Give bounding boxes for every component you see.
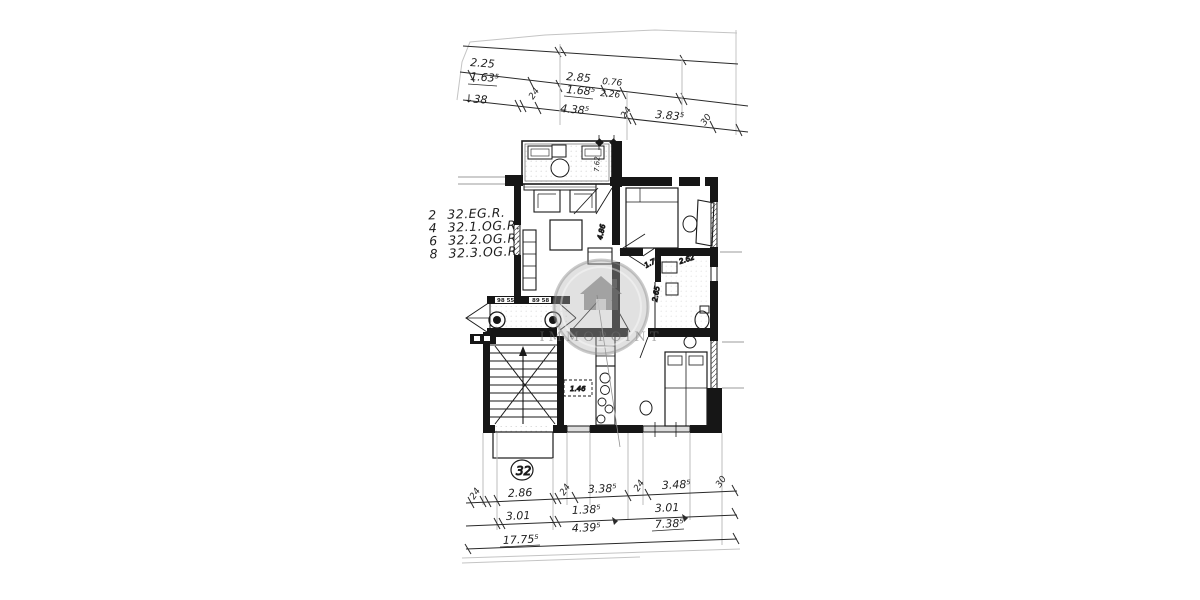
kitchen-sink bbox=[600, 373, 610, 383]
dim-24-b: 24 bbox=[619, 105, 634, 120]
dim-1-63: 1.63⁵ bbox=[470, 70, 500, 85]
bed-top bbox=[626, 188, 678, 248]
balcony: 7.62 bbox=[522, 135, 617, 184]
bdim-3-38: 3.38⁵ bbox=[588, 482, 617, 496]
watermark: IMMOPOINT bbox=[539, 260, 662, 354]
pillow-right bbox=[689, 356, 703, 365]
window-bedroom-bottom bbox=[643, 422, 690, 437]
stool bbox=[684, 336, 696, 348]
dim-0-76: 0.76 bbox=[602, 77, 623, 89]
pillow-left bbox=[668, 356, 682, 365]
bdim-24-a: 24 bbox=[468, 486, 483, 501]
bdim-3-01-b: 3.01 bbox=[655, 501, 680, 515]
chair-bottom bbox=[640, 401, 652, 415]
bdim-30: 30 bbox=[714, 474, 729, 489]
window-right-lower bbox=[711, 341, 717, 388]
window-bath-right bbox=[711, 267, 717, 281]
dim-38-arrow: ↓38 bbox=[464, 92, 488, 107]
bathroom: 1.76 2.62 2.65 bbox=[643, 248, 709, 332]
bdim-2-86: 2.86 bbox=[508, 486, 533, 500]
porch-number-left: 98 55 bbox=[497, 298, 514, 304]
dim-2-26: 2.26 bbox=[600, 89, 621, 101]
scanned-floor-plan-page: 2.25 1.63⁵ ↓38 2.85 1.68⁵ 0.76 2.26 24 4… bbox=[0, 0, 1200, 600]
dim-1-68: 1.68⁵ bbox=[566, 83, 596, 98]
balcony-chair-left bbox=[528, 146, 552, 159]
balcony-side-table bbox=[552, 145, 566, 157]
entry-vestibule: 32 bbox=[493, 426, 553, 480]
stove-burner bbox=[598, 398, 606, 406]
bdim-1-38: 1.38⁵ bbox=[572, 503, 601, 517]
dim-3-83: 3.83⁵ bbox=[655, 108, 685, 123]
dim-24-a: 24 bbox=[527, 86, 542, 101]
window-living-left bbox=[514, 225, 520, 255]
balcony-round-table bbox=[551, 159, 569, 177]
staircase bbox=[490, 345, 557, 424]
unit-number-badge: 32 bbox=[511, 460, 533, 480]
dim-2-25: 2.25 bbox=[470, 56, 495, 71]
kitchen-dim-box: 1.46 bbox=[564, 380, 592, 396]
floor-plan-drawing: 2.25 1.63⁵ ↓38 2.85 1.68⁵ 0.76 2.26 24 4… bbox=[0, 0, 1200, 600]
dim-4-38: 4.38⁵ bbox=[560, 102, 590, 117]
bdim-3-48: 3.48⁵ bbox=[662, 478, 691, 492]
bdim-4-39: 4.39⁵ bbox=[572, 521, 601, 535]
legend-num-4: 8 bbox=[429, 246, 438, 261]
bedroom-bottom bbox=[640, 336, 707, 426]
watermark-text: IMMOPOINT bbox=[539, 330, 662, 345]
kitchen-dim-label: 1.46 bbox=[570, 385, 586, 393]
porch-number-right: 89 58 bbox=[532, 298, 549, 304]
bookshelf bbox=[523, 230, 536, 290]
top-dimension-labels: 2.25 1.63⁵ ↓38 2.85 1.68⁵ 0.76 2.26 24 4… bbox=[464, 56, 714, 128]
bdim-24-b: 24 bbox=[558, 482, 573, 497]
bdim-24-c: 24 bbox=[632, 478, 647, 493]
living-table bbox=[550, 220, 582, 250]
unit-number: 32 bbox=[516, 464, 531, 478]
balcony-door-dim: 7.62 bbox=[593, 156, 602, 172]
desk-chair bbox=[683, 216, 697, 232]
floor-legend: 2 32.EG.R. 4 32.1.OG.R. 6 32.2.OG.R. 8 3… bbox=[428, 204, 522, 261]
window-kitchen-bottom bbox=[567, 426, 590, 432]
bdim-3-01-a: 3.01 bbox=[506, 509, 531, 523]
legend-label-4: 32.3.OG.R. bbox=[448, 243, 521, 261]
living-dim: 4.86 bbox=[596, 223, 607, 240]
bdim-7-38: 7.38⁵ bbox=[655, 517, 684, 531]
bdim-total: 17.75⁵ bbox=[503, 532, 539, 547]
